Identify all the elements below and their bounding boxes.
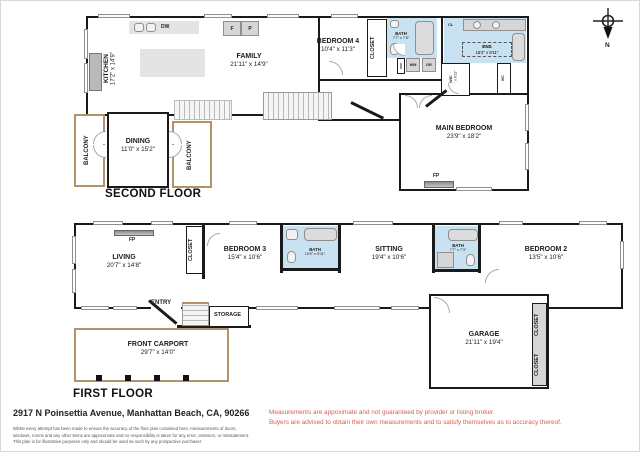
dishwasher-label: DW	[161, 24, 169, 30]
carport-label: FRONT CARPORT 29'7" x 14'0"	[118, 341, 198, 357]
window	[113, 306, 137, 310]
balcony-left-label: BALCONY	[84, 123, 91, 178]
stove-icon	[89, 53, 102, 91]
wall-segment	[338, 223, 341, 273]
sitting-label: SITTING 19'4" x 10'6"	[354, 246, 424, 262]
bath-1f-small-label: BATH 10'5" x 5'11"	[297, 247, 333, 257]
entry-label: ENTRY	[151, 300, 171, 306]
disclaimer-line: windows, rooms and any other items are a…	[13, 433, 263, 440]
wall-segment	[432, 269, 481, 272]
bathtub-icon	[512, 33, 525, 61]
sink-icon	[286, 229, 298, 240]
property-address: 2917 N Poinsettia Avenue, Manhattan Beac…	[13, 408, 249, 418]
disclaimer-line: Whilst every attempt has been made to en…	[13, 426, 263, 433]
wall-segment	[202, 223, 205, 279]
main-bedroom-label: MAIN BEDROOM 23'9" x 18'2"	[429, 125, 499, 141]
sink-icon	[473, 21, 481, 29]
window	[84, 29, 88, 59]
bathtub-icon	[448, 229, 478, 241]
bedroom2-label: BEDROOM 2 13'5" x 10'6"	[512, 246, 580, 262]
window	[499, 221, 523, 225]
shower-icon	[437, 252, 454, 268]
carport-pillar	[96, 375, 102, 381]
garage-label: GARAGE 21'11" x 19'4"	[449, 331, 519, 347]
wc-label: WC	[501, 67, 505, 90]
window	[256, 306, 298, 310]
window	[620, 241, 624, 269]
window	[353, 221, 393, 225]
bathtub-icon	[415, 21, 434, 55]
toilet-icon	[287, 251, 296, 263]
pantry-box: P	[241, 21, 259, 36]
carport-pillar	[154, 375, 160, 381]
garage-closet-top-label: CLOSET	[534, 306, 540, 344]
family-label: FAMILY 21'11" x 14'9"	[213, 53, 285, 69]
deck-stairs	[174, 100, 232, 120]
bedroom3-label: BEDROOM 3 15'4" x 10'6"	[211, 246, 279, 262]
compass-icon	[591, 6, 627, 46]
broker-notice-line: Measurements are appoximate and not guar…	[269, 408, 629, 418]
fridge-box: F	[223, 21, 241, 36]
window	[391, 306, 419, 310]
fireplace-1f-label: FP	[129, 237, 135, 243]
window	[525, 143, 529, 170]
stairs	[182, 302, 209, 326]
broker-notice-text: Measurements are appoximate and not guar…	[269, 408, 629, 428]
kitchen-sink-icon	[146, 23, 156, 32]
window	[93, 221, 123, 225]
second-floor-title: SECOND FLOOR	[105, 188, 201, 200]
window	[334, 306, 380, 310]
dryer-box: DR	[422, 58, 436, 72]
window	[204, 14, 232, 18]
fireplace-2f-label: FP	[433, 173, 439, 179]
closet-small-label: CL	[448, 22, 453, 27]
wall-segment	[478, 223, 481, 273]
bath-2f-label: BATH 7'7" x 7'6"	[387, 31, 415, 41]
first-floor-title: FIRST FLOOR	[73, 388, 153, 400]
broker-notice-line: Buyers are advised to obtain their own m…	[269, 418, 629, 428]
stairs	[263, 92, 332, 120]
closet-bedroom4-label: CLOSET	[370, 25, 376, 71]
cupboard-label: CUP	[399, 60, 403, 72]
disclaimer-text: Whilst every attempt has been made to en…	[13, 426, 263, 446]
window	[72, 236, 76, 264]
fireplace-2f	[424, 181, 454, 188]
carport-pillar	[125, 375, 131, 381]
garage-closet-bottom-label: CLOSET	[534, 346, 540, 384]
sink-icon	[492, 21, 500, 29]
bathtub-icon	[304, 228, 337, 241]
window	[151, 221, 173, 225]
ensuite-label: ENS 16'2" x 8'11"	[462, 42, 512, 57]
bedroom4-label: BEDROOM 4 10'4" x 11'3"	[306, 38, 370, 54]
window	[267, 14, 299, 18]
window	[331, 14, 358, 18]
kitchen-island	[140, 49, 205, 77]
storage-label: STORAGE	[214, 312, 241, 318]
sink-icon	[390, 20, 399, 28]
dining-label: DINING 11'0" x 15'2"	[111, 138, 165, 154]
window	[98, 14, 130, 18]
window	[229, 221, 257, 225]
window	[81, 306, 109, 310]
window	[456, 187, 492, 191]
kitchen-label: KITCHEN 17'2" x 14'9"	[103, 43, 117, 95]
window	[72, 269, 76, 293]
living-label: LIVING 20'7" x 14'8"	[89, 254, 159, 270]
washer-box: WM	[406, 58, 420, 72]
bath-1f-label: BATH 7'7" x 7'3"	[441, 243, 475, 253]
compass-north-label: N	[605, 42, 610, 49]
floor-plan-canvas: DW F P KITCHEN 17'2" x 14'9" FAMILY 21'1…	[0, 0, 640, 452]
toilet-icon	[466, 254, 475, 266]
window	[525, 104, 529, 131]
window	[84, 63, 88, 93]
disclaimer-line: This plan is for illustrative purposes o…	[13, 439, 263, 446]
closet-1f-label: CLOSET	[188, 230, 194, 270]
kitchen-sink-icon	[134, 23, 144, 32]
balcony-right-label: BALCONY	[187, 128, 194, 183]
window	[579, 221, 607, 225]
carport-pillar	[183, 375, 189, 381]
fireplace-1f	[114, 230, 154, 236]
wall-segment	[280, 268, 341, 271]
